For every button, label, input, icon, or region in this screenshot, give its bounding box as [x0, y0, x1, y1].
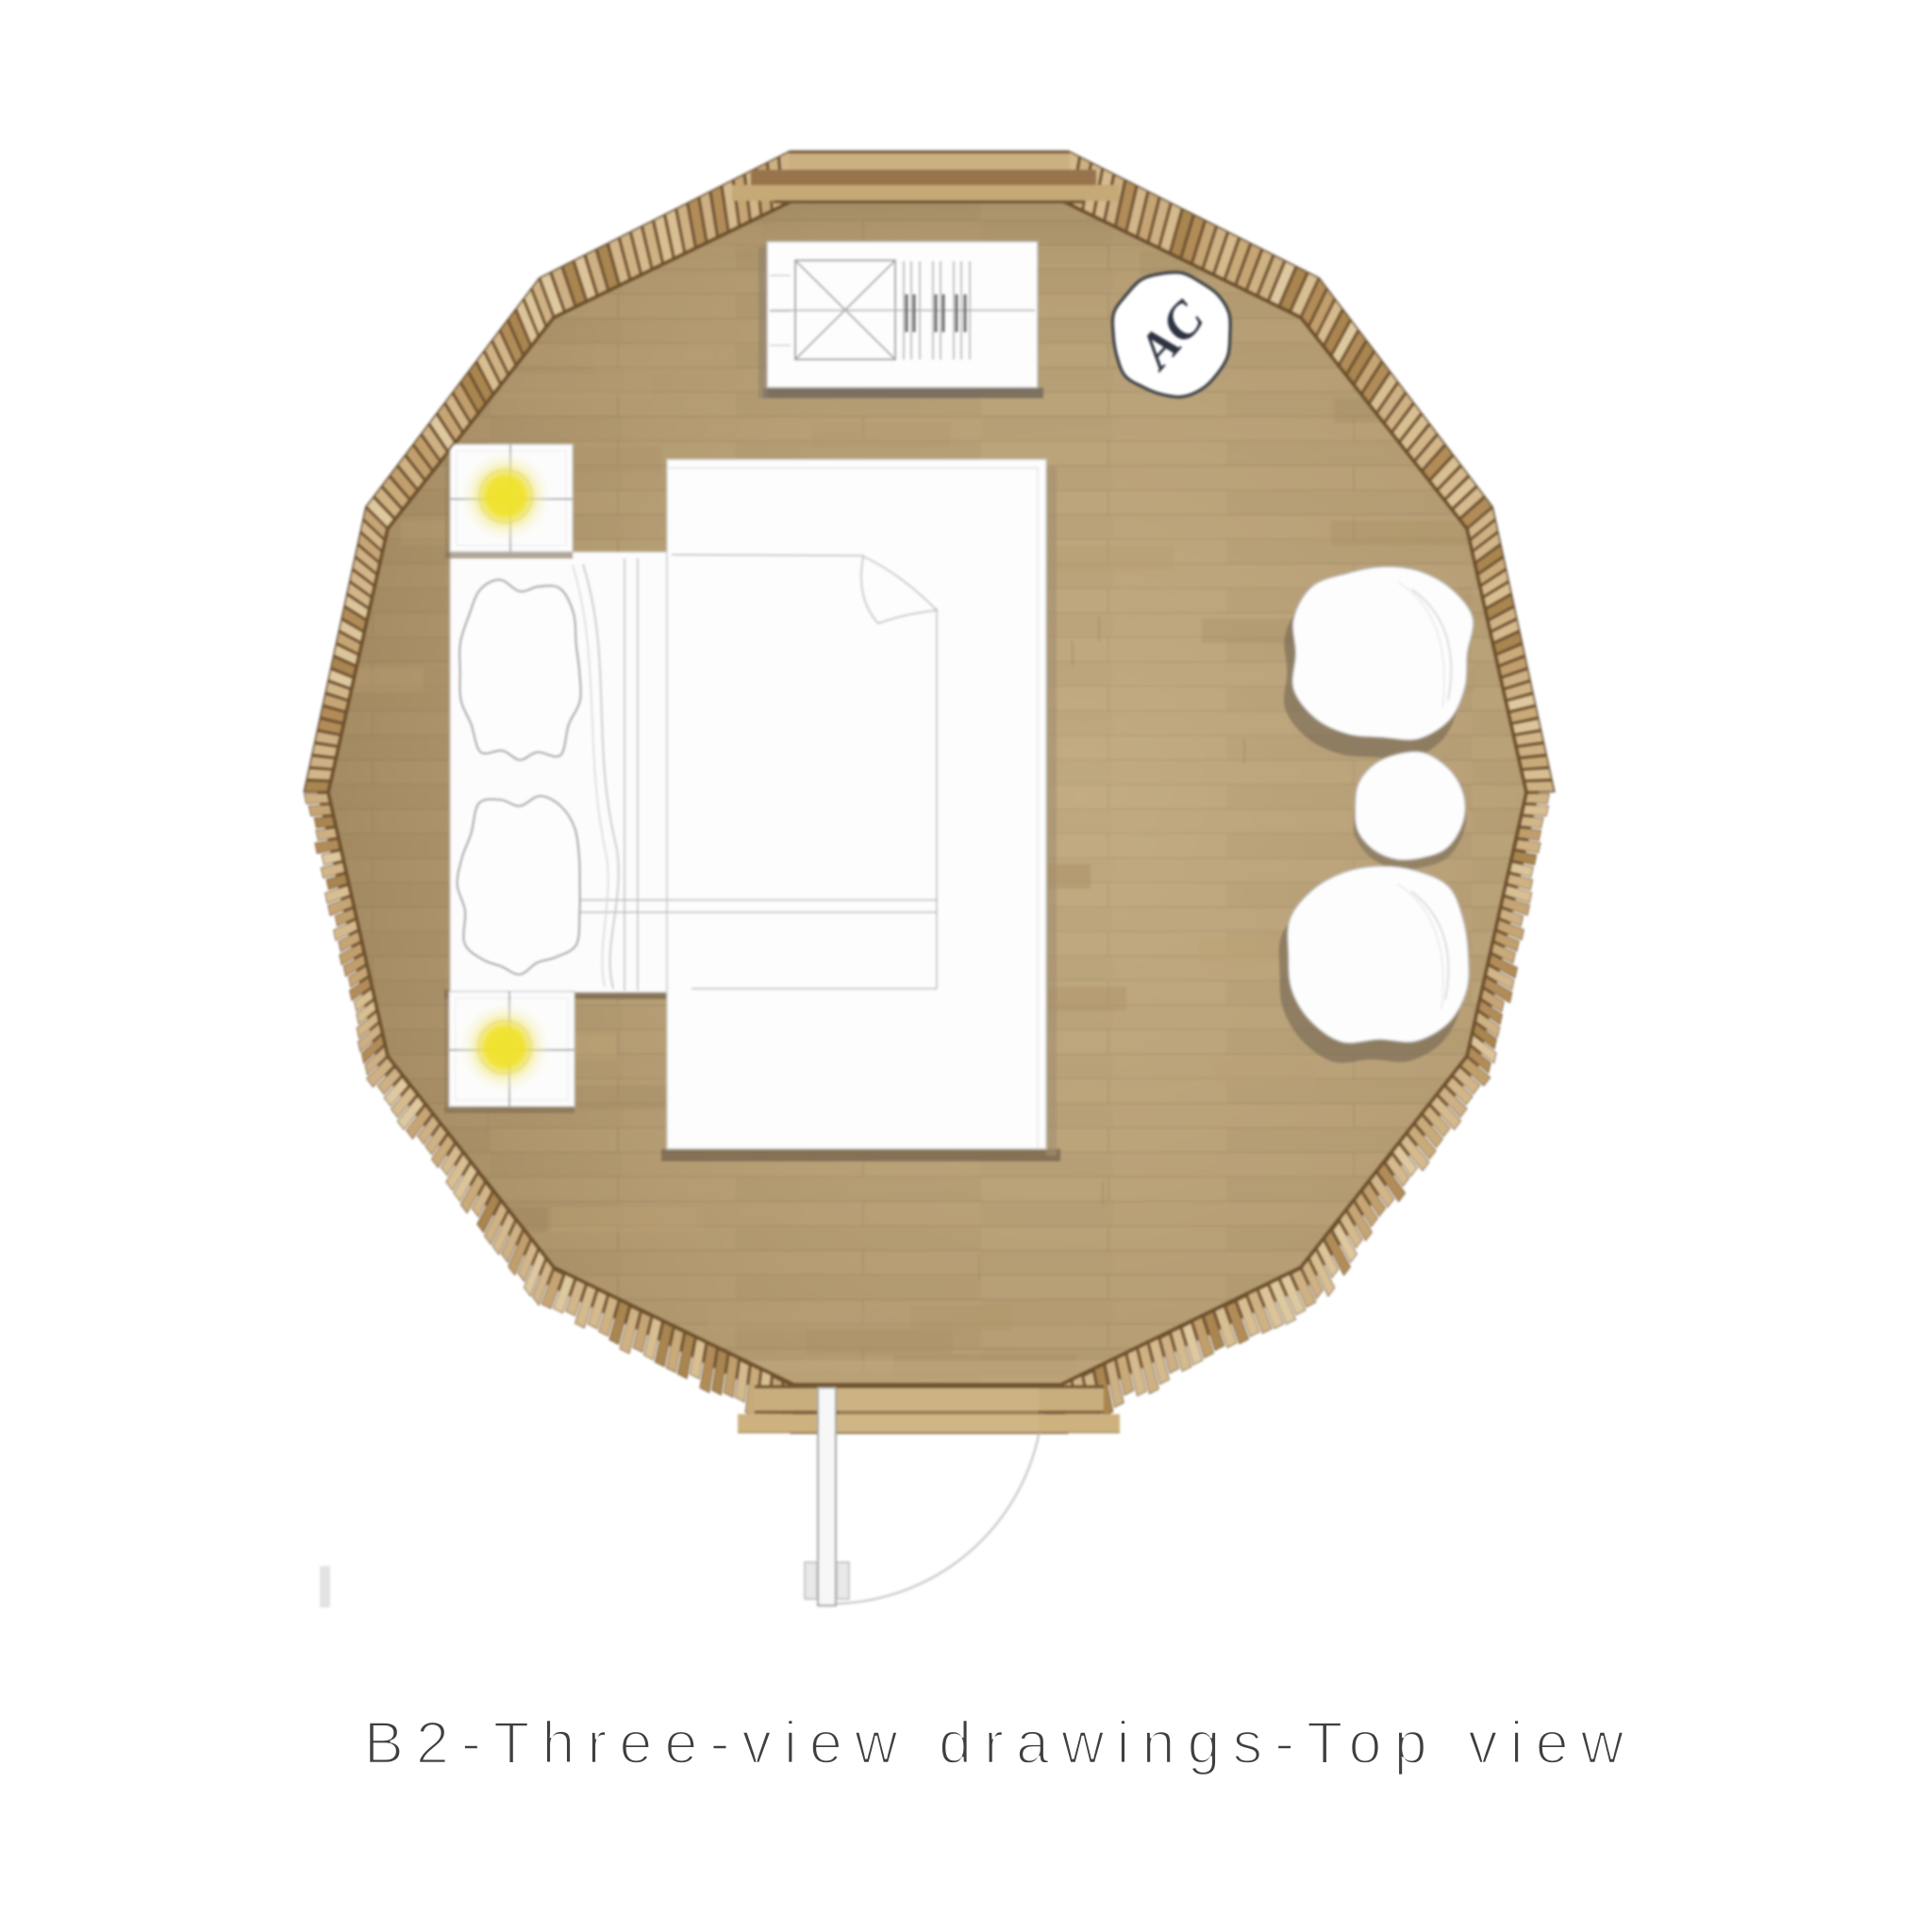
svg-text:B2-Three-view drawings-Top vie: B2-Three-view drawings-Top view: [364, 1710, 1636, 1776]
